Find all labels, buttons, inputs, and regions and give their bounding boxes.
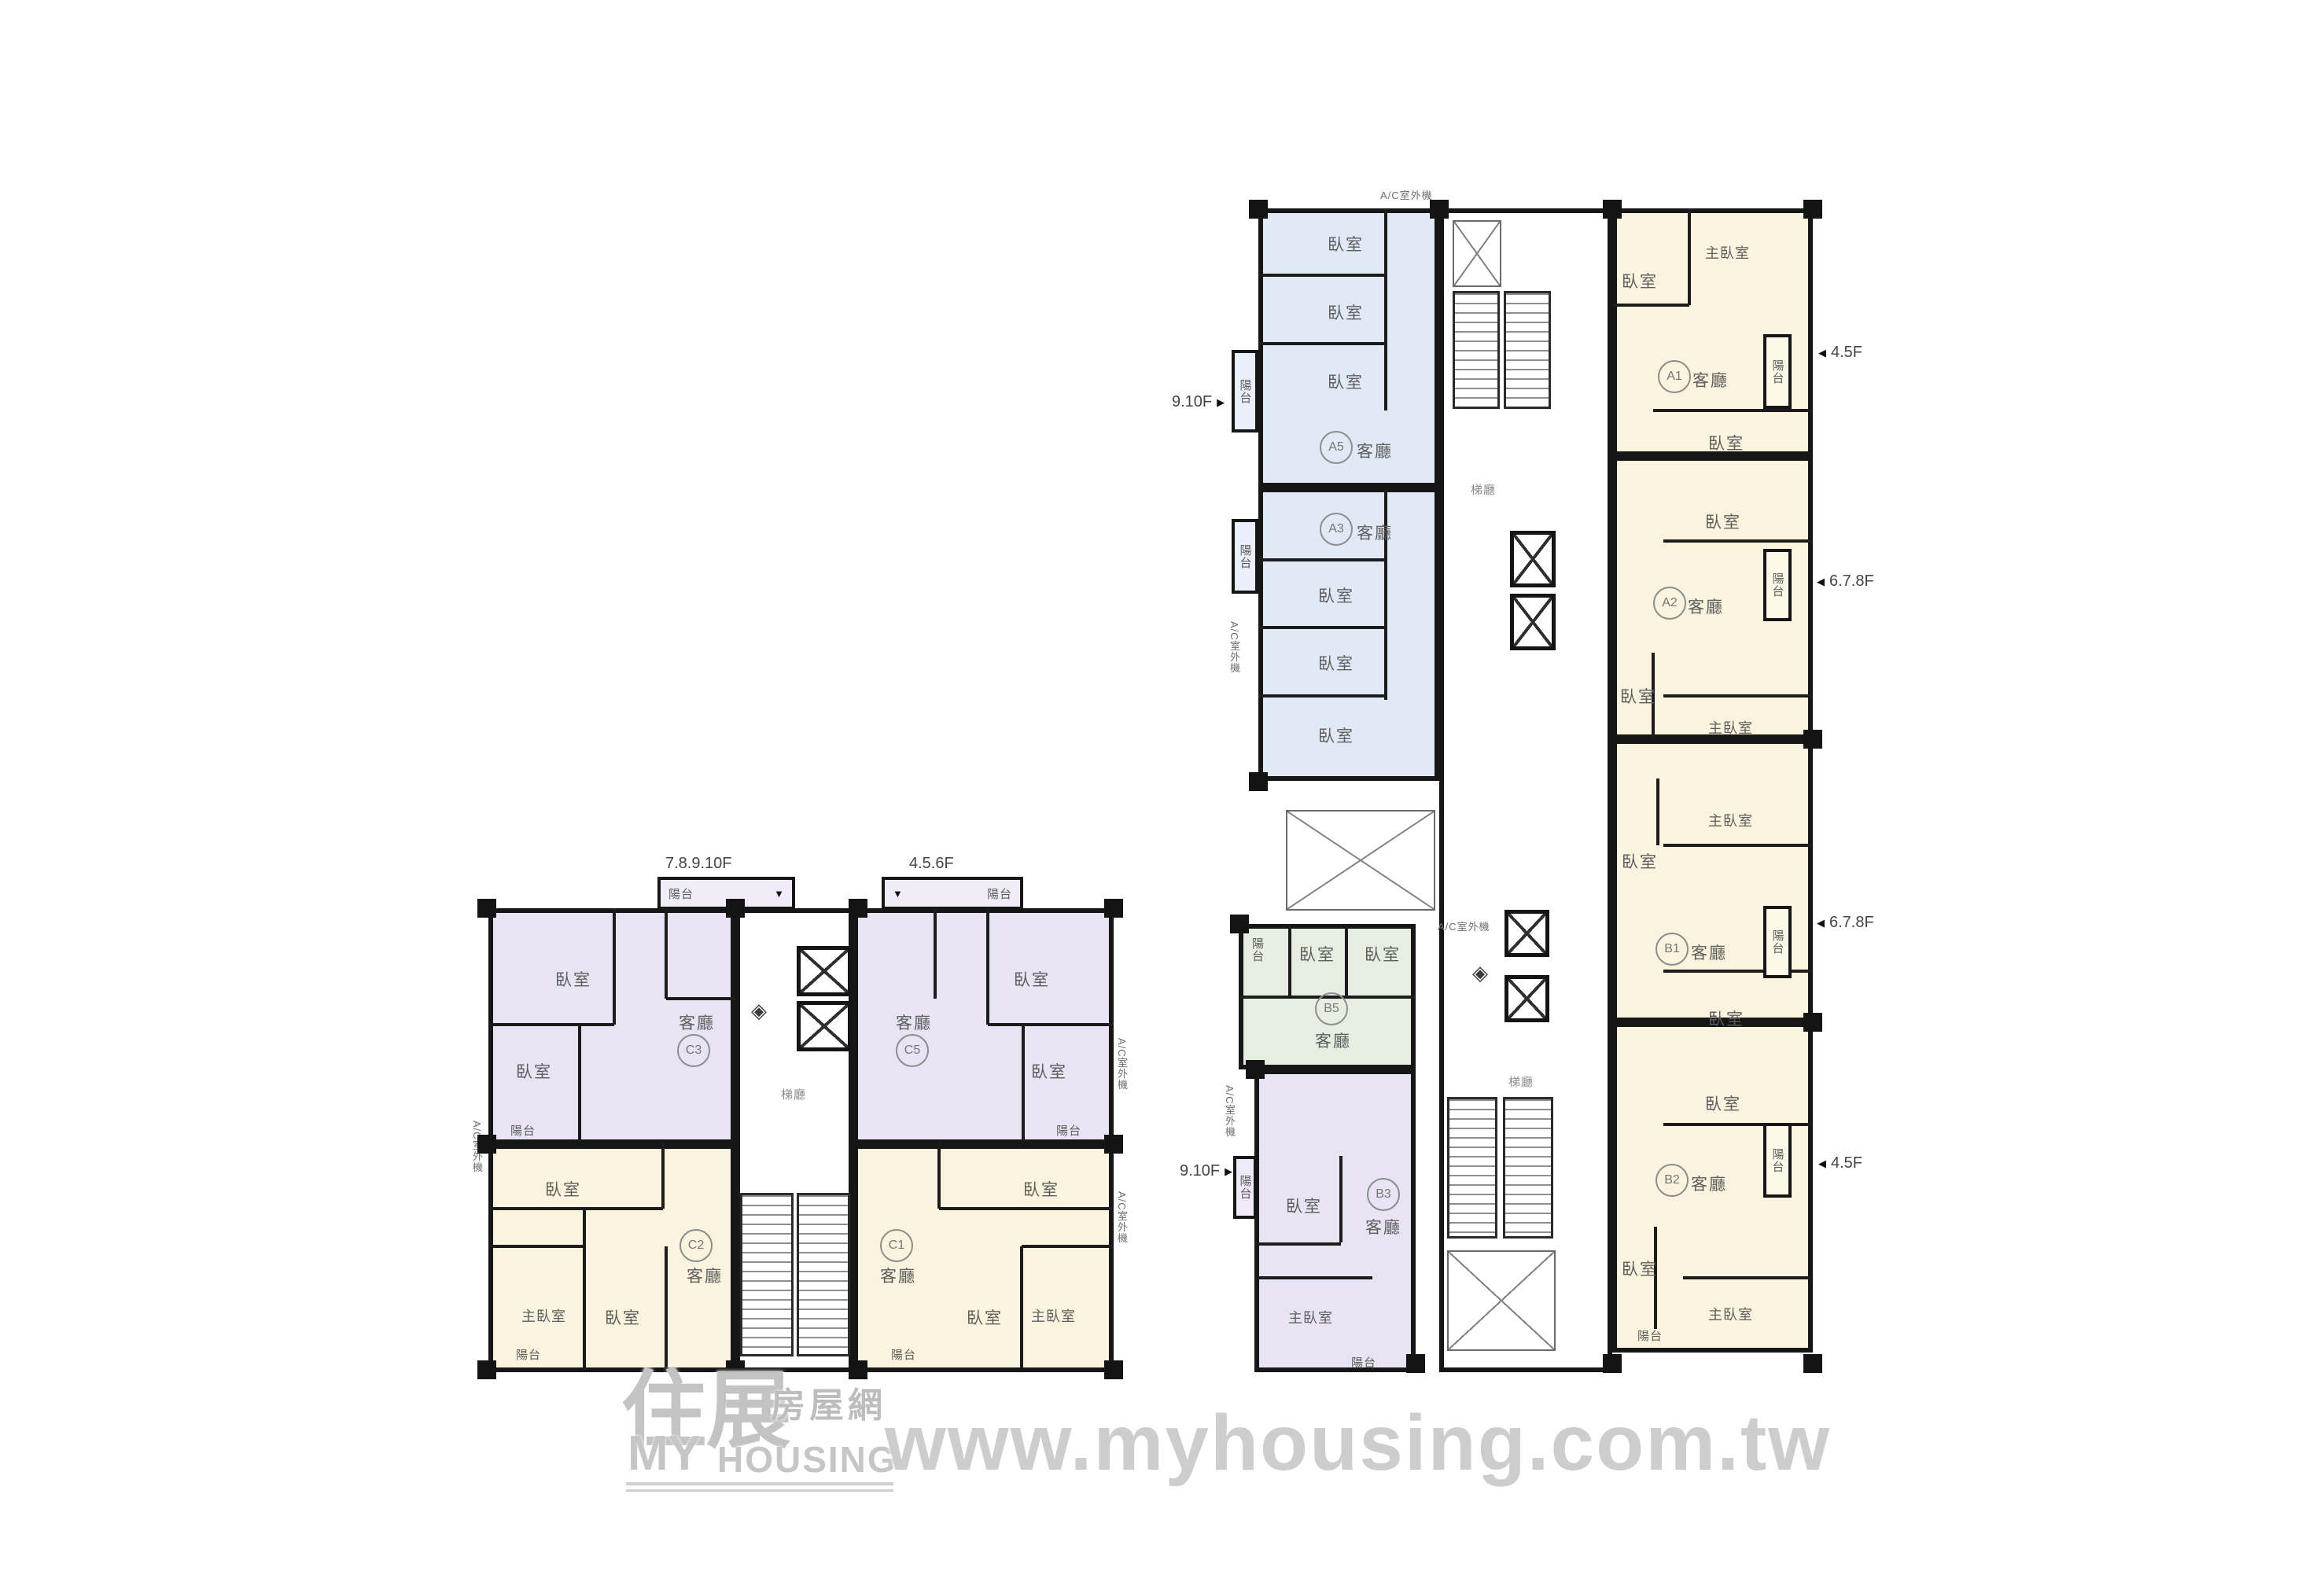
balcony-strip: 陽台 bbox=[1763, 334, 1792, 409]
wall-pier bbox=[726, 899, 745, 918]
stairs bbox=[1504, 291, 1551, 409]
room-label-living: 客廳 bbox=[1691, 1172, 1727, 1195]
arrow-left-icon: ◀ bbox=[1817, 576, 1825, 588]
shaft-void bbox=[1447, 1250, 1556, 1351]
lift-hall-label: 梯廳 bbox=[1508, 1073, 1534, 1090]
room-label-bedroom: 臥室 bbox=[1299, 942, 1335, 966]
unit-code-c5: C5 bbox=[896, 1034, 929, 1067]
wall-pier bbox=[1406, 1354, 1425, 1373]
balcony-label: 陽台 bbox=[1770, 572, 1786, 598]
logo-my-text: MY bbox=[628, 1426, 701, 1481]
floor-range-label: ◀ 6.7.8F bbox=[1817, 914, 1874, 932]
right-building: A/C室外機 梯廳 ◈ 梯廳 陽台 bbox=[1211, 181, 1864, 1408]
room-label-bedroom: 臥室 bbox=[1622, 1257, 1658, 1280]
elevator-shaft bbox=[797, 946, 852, 996]
room-label-bedroom: 臥室 bbox=[555, 967, 591, 991]
unit-code-b1: B1 bbox=[1656, 933, 1689, 966]
floor-range-label: ◀ 4.5F bbox=[1818, 1154, 1862, 1172]
room-label-master: 主臥室 bbox=[521, 1305, 566, 1326]
arrow-left-icon: ◀ bbox=[1818, 1158, 1826, 1170]
arrow-left-icon: ◀ bbox=[1818, 347, 1826, 359]
floor-range-label: 4.5.6F bbox=[909, 855, 954, 873]
balcony-strip: 陽台 bbox=[1763, 549, 1792, 621]
room-label-master: 主臥室 bbox=[1705, 242, 1750, 263]
floor-range-label: ◀ 4.5F bbox=[1818, 344, 1862, 362]
unit-code-a2: A2 bbox=[1653, 587, 1686, 620]
unit-code-b5: B5 bbox=[1315, 992, 1348, 1025]
wall-pier bbox=[1603, 1354, 1622, 1373]
room-label-bedroom: 臥室 bbox=[1328, 232, 1364, 256]
wall-pier bbox=[1803, 730, 1822, 749]
room-label-bedroom: 臥室 bbox=[1620, 684, 1656, 708]
wall-pier bbox=[1803, 1013, 1822, 1032]
ac-outdoor-label: A/C室外機 bbox=[1114, 1191, 1129, 1244]
lift-hall-label: 梯廳 bbox=[781, 1086, 806, 1102]
stairs bbox=[1447, 1097, 1497, 1239]
room-label-bedroom: 臥室 bbox=[1318, 723, 1354, 747]
myhousing-logo: 住展 房屋網 MY HOUSING bbox=[621, 1356, 912, 1494]
compass-diamond-icon: ◈ bbox=[751, 999, 767, 1023]
room-label-bedroom: 臥室 bbox=[1705, 1091, 1741, 1115]
room-label-bedroom: 臥室 bbox=[1318, 583, 1354, 607]
room-label-bedroom: 臥室 bbox=[1014, 967, 1050, 991]
floor-range-label: 7.8.9.10F bbox=[665, 855, 732, 873]
unit-code-c3: C3 bbox=[677, 1034, 710, 1067]
arrow-down-icon: ▼ bbox=[893, 888, 903, 900]
room-label-living: 客廳 bbox=[880, 1264, 916, 1287]
floor-range-text: 9.10F bbox=[1172, 393, 1212, 411]
left-building: 7.8.9.10F 4.5.6F 陽台 ▼ ▼ 陽台 ◈ 梯廳 臥室 臥室 客廳 bbox=[481, 853, 1121, 1404]
arrow-right-icon: ▶ bbox=[1225, 1165, 1232, 1178]
wall-pier bbox=[1104, 1135, 1123, 1154]
room-label-bedroom: 臥室 bbox=[1318, 651, 1354, 675]
balcony-label: 陽台 bbox=[1770, 1148, 1786, 1173]
balcony-label: 陽台 bbox=[1249, 937, 1265, 962]
elevator-shaft bbox=[797, 1001, 852, 1051]
floor-range-label: 9.10F ▶ bbox=[1172, 393, 1225, 411]
unit-code-a3: A3 bbox=[1320, 513, 1353, 546]
room-label-bedroom: 臥室 bbox=[516, 1059, 552, 1083]
stairs bbox=[1503, 1097, 1553, 1239]
arrow-down-icon: ▼ bbox=[774, 888, 784, 900]
room-label-bedroom: 臥室 bbox=[1286, 1194, 1322, 1217]
room-label-bedroom: 臥室 bbox=[1365, 942, 1401, 966]
floor-range-text: 6.7.8F bbox=[1829, 914, 1874, 932]
wall-pier bbox=[477, 1360, 496, 1379]
room-label-master: 主臥室 bbox=[1288, 1307, 1333, 1327]
balcony-label: 陽台 bbox=[1770, 359, 1786, 385]
elevator-shaft bbox=[1510, 531, 1556, 587]
room-label-bedroom: 臥室 bbox=[1328, 370, 1364, 393]
balcony-strip: 陽台 bbox=[1763, 1123, 1792, 1198]
ac-outdoor-label: A/C室外機 bbox=[1114, 1038, 1129, 1091]
room-label-living: 客廳 bbox=[679, 1010, 715, 1034]
room-label-living: 客廳 bbox=[1357, 521, 1393, 544]
room-label-living: 客廳 bbox=[1691, 940, 1727, 964]
balcony-label: 陽台 bbox=[1351, 1354, 1376, 1371]
room-label-living: 客廳 bbox=[1357, 439, 1393, 462]
room-label-master: 主臥室 bbox=[1708, 717, 1753, 738]
room-label-bedroom: 臥室 bbox=[1023, 1177, 1059, 1201]
elevator-shaft bbox=[1510, 594, 1556, 650]
floor-range-text: 6.7.8F bbox=[1829, 572, 1874, 591]
room-label-master: 主臥室 bbox=[1708, 1304, 1753, 1324]
wall-pier bbox=[1104, 1360, 1123, 1379]
wall-pier bbox=[1803, 200, 1822, 219]
unit-b1-block bbox=[1612, 739, 1813, 1022]
compass-diamond-icon: ◈ bbox=[1472, 961, 1488, 985]
balcony-label: 陽台 bbox=[510, 1122, 536, 1139]
room-label-living: 客廳 bbox=[1692, 368, 1729, 392]
wall-pier bbox=[477, 1135, 496, 1154]
floor-range-text: 4.5F bbox=[1831, 344, 1862, 362]
balcony-strip: 陽台 bbox=[1232, 519, 1258, 594]
room-label-master: 主臥室 bbox=[1031, 1305, 1076, 1326]
balcony-label: 陽台 bbox=[1770, 929, 1786, 955]
lift-hall-label: 梯廳 bbox=[1471, 481, 1496, 498]
room-label-living: 客廳 bbox=[1365, 1215, 1401, 1239]
shaft-void bbox=[1453, 220, 1501, 287]
elevator-shaft bbox=[1505, 975, 1549, 1022]
watermark-url: www.myhousing.com.tw bbox=[885, 1398, 1831, 1489]
wall-pier bbox=[1249, 200, 1268, 219]
balcony-label: 陽台 bbox=[1056, 1122, 1081, 1139]
room-label-living: 客廳 bbox=[1688, 594, 1724, 618]
logo-cn-text: 房屋網 bbox=[771, 1377, 886, 1427]
wall-pier bbox=[1803, 1354, 1822, 1373]
room-label-living: 客廳 bbox=[687, 1264, 723, 1287]
room-label-bedroom: 臥室 bbox=[1705, 510, 1741, 533]
ac-outdoor-label: A/C室外機 bbox=[1222, 1085, 1237, 1138]
wall-pier bbox=[477, 899, 496, 918]
stairs bbox=[740, 1193, 794, 1356]
wall-pier bbox=[1246, 1060, 1265, 1079]
unit-code-a1: A1 bbox=[1658, 360, 1691, 393]
balcony-strip: 陽台 bbox=[1763, 906, 1792, 978]
floorplan-canvas: 7.8.9.10F 4.5.6F 陽台 ▼ ▼ 陽台 ◈ 梯廳 臥室 臥室 客廳 bbox=[0, 0, 2324, 1579]
unit-c5-block bbox=[853, 908, 1114, 1144]
balcony-strip: 陽台 bbox=[1233, 1156, 1257, 1219]
floor-range-label: 9.10F ▶ bbox=[1180, 1162, 1232, 1180]
room-label-bedroom: 臥室 bbox=[1622, 269, 1658, 293]
unit-code-b2: B2 bbox=[1656, 1164, 1689, 1197]
balcony-strip: 陽台 bbox=[1232, 350, 1258, 432]
ac-outdoor-label: A/C室外機 bbox=[1380, 187, 1433, 202]
balcony-label: 陽台 bbox=[516, 1346, 541, 1363]
room-label-bedroom: 臥室 bbox=[1622, 849, 1658, 873]
room-label-bedroom: 臥室 bbox=[1031, 1059, 1067, 1083]
balcony-label: 陽台 bbox=[987, 885, 1012, 902]
stairs bbox=[797, 1193, 850, 1356]
balcony-label: 陽台 bbox=[668, 885, 694, 902]
elevator-shaft bbox=[1505, 910, 1549, 957]
room-label-bedroom: 臥室 bbox=[1708, 431, 1744, 455]
wall-pier bbox=[1249, 772, 1268, 791]
unit-code-c1: C1 bbox=[880, 1229, 913, 1262]
balcony-strip: ▼ 陽台 bbox=[882, 877, 1023, 910]
balcony-label: 陽台 bbox=[1637, 1327, 1663, 1344]
stairs bbox=[1453, 291, 1500, 409]
room-label-bedroom: 臥室 bbox=[545, 1177, 581, 1201]
room-label-living: 客廳 bbox=[896, 1010, 932, 1034]
room-label-living: 客廳 bbox=[1315, 1029, 1351, 1052]
room-label-bedroom: 臥室 bbox=[1328, 300, 1364, 324]
shaft-void bbox=[1286, 810, 1435, 911]
ac-outdoor-label: A/C室外機 bbox=[1227, 621, 1242, 674]
unit-code-b3: B3 bbox=[1367, 1178, 1400, 1211]
logo-underline bbox=[626, 1482, 893, 1485]
wall-pier bbox=[849, 899, 867, 918]
room-label-bedroom: 臥室 bbox=[605, 1305, 641, 1329]
logo-underline bbox=[626, 1489, 893, 1492]
balcony-label: 陽台 bbox=[1237, 544, 1254, 569]
wall-pier bbox=[1230, 915, 1249, 933]
arrow-right-icon: ▶ bbox=[1217, 396, 1225, 409]
room-label-master: 主臥室 bbox=[1708, 810, 1753, 830]
balcony-label: 陽台 bbox=[1237, 1175, 1254, 1200]
floor-range-text: 4.5F bbox=[1831, 1154, 1862, 1172]
floor-range-text: 9.10F bbox=[1180, 1162, 1220, 1180]
wall-pier bbox=[1430, 200, 1449, 219]
wall-pier bbox=[1104, 899, 1123, 918]
logo-housing-text: HOUSING bbox=[717, 1438, 897, 1481]
unit-code-a5: A5 bbox=[1320, 431, 1353, 464]
room-label-bedroom: 臥室 bbox=[967, 1305, 1003, 1329]
arrow-left-icon: ◀ bbox=[1817, 917, 1825, 929]
unit-code-c2: C2 bbox=[680, 1229, 713, 1262]
room-label-bedroom: 臥室 bbox=[1708, 1007, 1744, 1030]
ac-outdoor-label: A/C室外機 bbox=[1438, 918, 1490, 933]
wall-pier bbox=[1603, 200, 1622, 219]
balcony-label: 陽台 bbox=[1237, 379, 1254, 404]
floor-range-label: ◀ 6.7.8F bbox=[1817, 572, 1874, 591]
